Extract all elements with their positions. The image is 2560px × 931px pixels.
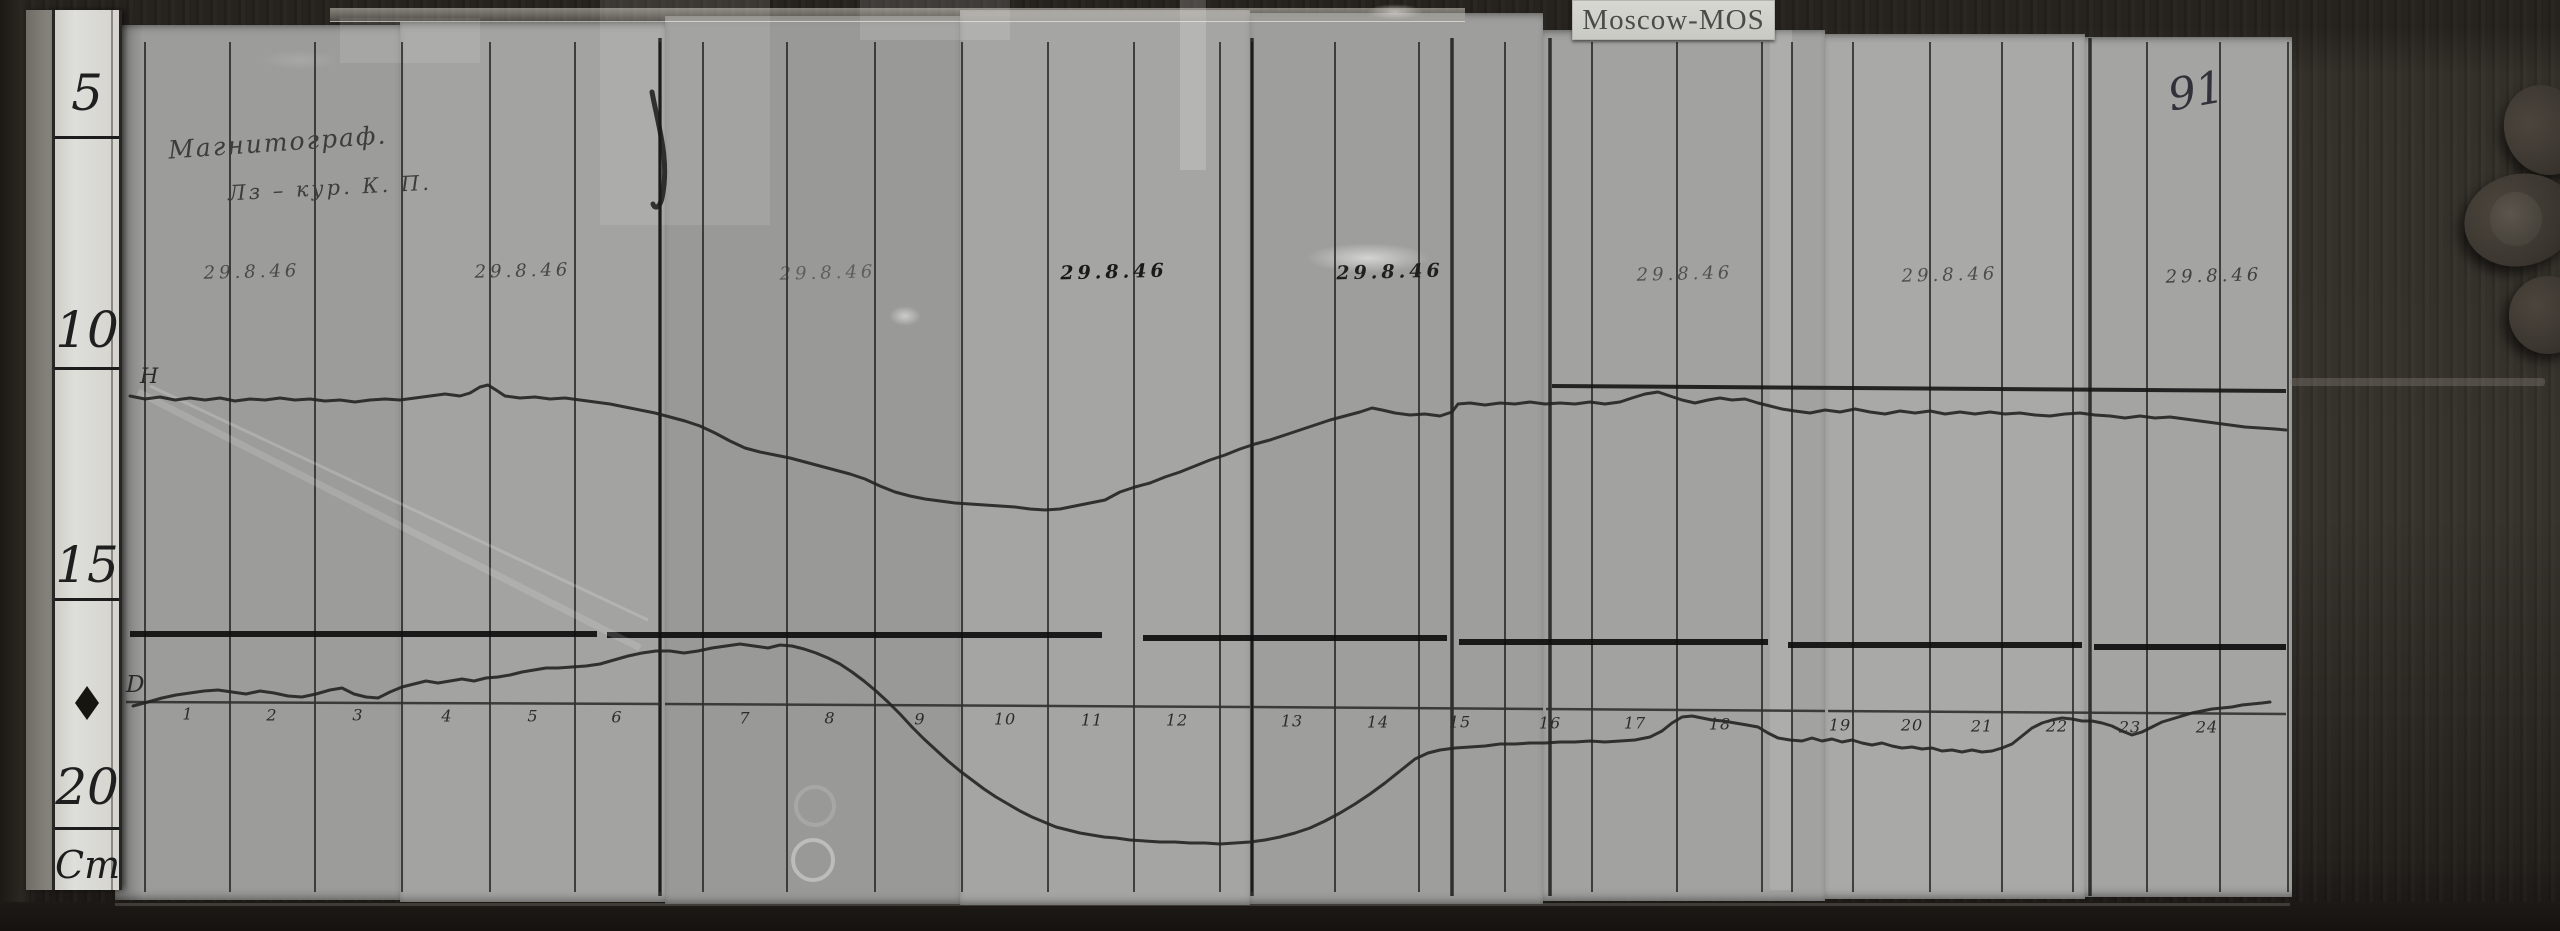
hour-number-21: 21 bbox=[1971, 716, 1993, 735]
hour-baseline bbox=[1546, 709, 1825, 711]
ruler-edge-shadow bbox=[26, 10, 52, 890]
ruler-tick-20 bbox=[55, 827, 119, 830]
hour-number-22: 22 bbox=[2046, 717, 2068, 736]
d-trace-label: D bbox=[126, 672, 144, 698]
hour-number-17: 17 bbox=[1624, 714, 1646, 733]
date-label-2: 29.8.46 bbox=[474, 259, 571, 283]
date-label-8: 29.8.46 bbox=[2165, 264, 2262, 288]
hour-number-3: 3 bbox=[352, 706, 363, 725]
tape-scratch bbox=[138, 392, 640, 648]
tape-scratch bbox=[150, 386, 648, 620]
hour-number-19: 19 bbox=[1829, 715, 1851, 734]
date-label-7: 29.8.46 bbox=[1901, 263, 1998, 287]
hour-number-7: 7 bbox=[739, 708, 750, 727]
hour-number-15: 15 bbox=[1449, 713, 1471, 732]
hour-baseline bbox=[665, 704, 1250, 707]
h-trace-label: H bbox=[140, 364, 158, 388]
fingernail bbox=[2490, 192, 2542, 246]
hour-number-1: 1 bbox=[182, 705, 193, 724]
h-reference-line bbox=[1552, 386, 2286, 391]
hour-number-9: 9 bbox=[914, 709, 925, 728]
hour-baseline bbox=[1253, 707, 1543, 709]
hour-number-10: 10 bbox=[994, 710, 1016, 729]
hour-number-23: 23 bbox=[2119, 717, 2141, 736]
hour-number-8: 8 bbox=[824, 709, 835, 728]
hour-number-11: 11 bbox=[1081, 710, 1103, 729]
hour-baseline bbox=[1828, 711, 2286, 714]
ruler-number-10: 10 bbox=[55, 301, 119, 359]
ruler-tick-5 bbox=[55, 136, 119, 139]
reinforcement-ring-2 bbox=[791, 838, 835, 882]
sheet-number: 91 bbox=[2164, 62, 2228, 122]
ruler-unit-label: Cm bbox=[55, 843, 119, 887]
ruler-tick-15 bbox=[55, 598, 119, 601]
hour-number-5: 5 bbox=[527, 707, 538, 726]
ruler-tick-10 bbox=[55, 367, 119, 370]
hour-number-2: 2 bbox=[266, 705, 277, 724]
date-label-3: 29.8.46 bbox=[779, 261, 876, 285]
hour-number-24: 24 bbox=[2196, 718, 2218, 737]
date-label-5: 29.8.46 bbox=[1336, 260, 1444, 285]
magnetogram-photo: 29.8.4629.8.4629.8.4629.8.4629.8.4629.8.… bbox=[0, 0, 2560, 931]
hour-number-13: 13 bbox=[1281, 712, 1303, 731]
hour-number-6: 6 bbox=[611, 707, 622, 726]
date-label-1: 29.8.46 bbox=[203, 260, 300, 284]
hour-baseline bbox=[126, 702, 660, 704]
date-label-6: 29.8.46 bbox=[1636, 262, 1733, 286]
hour-number-12: 12 bbox=[1166, 711, 1188, 730]
ruler-number-15: 15 bbox=[55, 536, 119, 594]
trace-h bbox=[130, 385, 2286, 510]
centimeter-ruler: 5101520 Cm bbox=[26, 10, 118, 890]
observatory-name-label: Moscow-MOS bbox=[1572, 0, 1775, 40]
hour-number-4: 4 bbox=[441, 706, 452, 725]
date-label-4: 29.8.46 bbox=[1060, 260, 1168, 285]
hour-number-18: 18 bbox=[1709, 714, 1731, 733]
ruler-number-5: 5 bbox=[55, 64, 119, 122]
hour-number-20: 20 bbox=[1901, 716, 1923, 735]
hour-number-14: 14 bbox=[1367, 712, 1389, 731]
ruler-face: 5101520 Cm bbox=[52, 10, 122, 890]
reinforcement-ring-1 bbox=[794, 785, 836, 827]
hour-number-16: 16 bbox=[1539, 713, 1561, 732]
ruler-number-20: 20 bbox=[55, 758, 119, 816]
trace-d bbox=[133, 644, 2270, 844]
ruler-diamond-marker bbox=[75, 686, 99, 720]
